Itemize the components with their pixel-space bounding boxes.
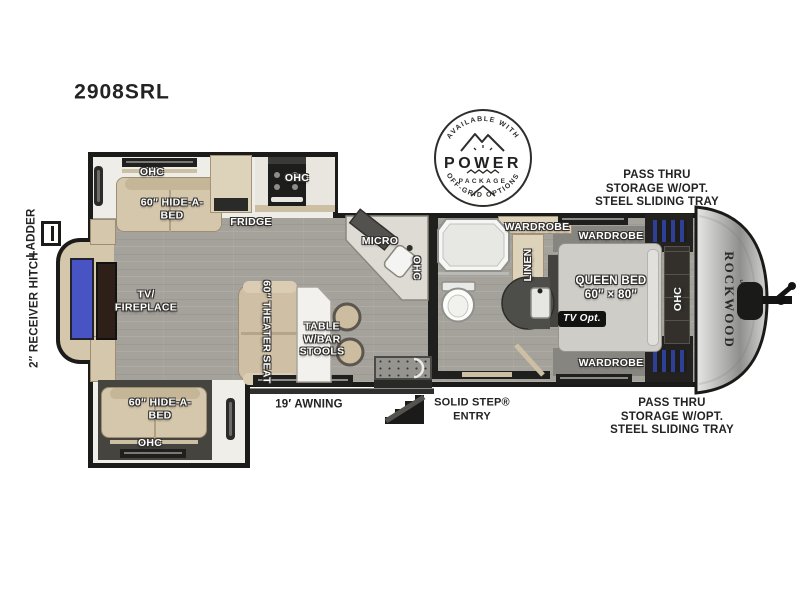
floorplan-canvas: 2908SRL AVAILABLE WITH OFF-GRID OPTIONS … <box>0 0 800 600</box>
label-wardrobe-front-top: WARDROBE <box>579 230 644 243</box>
label-tv-fireplace: TV/ FIREPLACE <box>115 289 177 314</box>
awning-bar <box>224 388 434 394</box>
bed-pillows <box>647 249 659 346</box>
badge-package-text: PACKAGE <box>459 178 508 185</box>
kitchen-shelf-strip <box>255 205 335 212</box>
fireplace <box>96 262 117 340</box>
tv-screen <box>70 258 94 340</box>
rear-corner-cabinet-bottom <box>90 336 116 382</box>
label-hide-a-bed-bottom: 60″ HIDE-A- BED <box>129 397 192 422</box>
jack-handle <box>778 287 791 298</box>
solid-step-rail <box>386 397 424 421</box>
power-package-badge: AVAILABLE WITH OFF-GRID OPTIONS POWER PA… <box>431 106 535 210</box>
label-pass-thru-bottom: PASS THRU STORAGE W/OPT. STEEL SLIDING T… <box>610 397 734 438</box>
badge-word: POWER <box>444 155 522 172</box>
rockwood-logo: ROCKWOOD <box>722 251 737 349</box>
front-cap <box>696 207 767 393</box>
badge-sun-rays-icon <box>474 145 492 150</box>
label-ohc-counter: OHC <box>410 256 423 280</box>
label-pass-thru-top: PASS THRU STORAGE W/OPT. STEEL SLIDING T… <box>595 169 719 210</box>
label-micro: MICRO <box>362 235 399 248</box>
label-ohc-slide-bottom: OHC <box>138 437 162 450</box>
slideout-top-window <box>94 166 103 206</box>
front-cap-accent <box>699 216 755 384</box>
label-awning: 19′ AWNING <box>275 398 343 412</box>
label-ohc-range: OHC <box>285 172 309 185</box>
entry-landing <box>374 356 432 380</box>
label-solid-step: SOLID STEP® ENTRY <box>434 397 510 424</box>
solid-step-icon <box>385 395 424 424</box>
bedroom-window-bottom <box>556 374 632 384</box>
badge-mountains-icon <box>461 134 504 151</box>
svg-text:AVAILABLE WITH: AVAILABLE WITH <box>446 116 520 140</box>
fridge-cabinet <box>210 155 252 213</box>
label-hide-a-bed-top: 60″ HIDE-A- BED <box>141 197 204 222</box>
tv-opt-label: TV Opt. <box>563 313 601 326</box>
label-fridge: FRIDGE <box>230 216 271 229</box>
range <box>268 164 306 206</box>
badge-arc-top-text: AVAILABLE WITH <box>446 116 520 140</box>
label-theater-seat: 60″ THEATER SEAT <box>260 280 273 383</box>
rear-corner-cabinet-top <box>90 219 116 245</box>
rockwood-logo-sub: ULTRA LITE <box>739 280 744 321</box>
label-wardrobe-front-bottom: WARDROBE <box>579 357 644 370</box>
bathroom-door-threshold <box>462 372 512 377</box>
model-title: 2908SRL <box>74 85 170 99</box>
entry-threshold <box>374 380 432 388</box>
label-receiver-hitch: 2″ RECEIVER HITCH <box>28 252 42 368</box>
label-ohc-bedroom: OHC <box>672 287 685 311</box>
tongue-jack <box>776 295 786 305</box>
label-table-stools: TABLE W/BAR STOOLS <box>300 320 345 358</box>
hitch-tongue <box>762 296 792 304</box>
fridge-front <box>214 198 248 211</box>
label-linen: LINEN <box>522 249 535 282</box>
ohc-cabinet-slide-bottom <box>120 449 186 458</box>
label-ohc-slide-top: OHC <box>140 166 164 179</box>
propane-cover <box>737 282 763 320</box>
bathroom-wall-left <box>428 216 438 376</box>
slideout-bottom-window <box>226 398 235 440</box>
label-queen-bed: QUEEN BED 60″ × 80″ <box>575 274 646 302</box>
range-hood <box>268 157 306 164</box>
ladder-icon <box>41 221 61 246</box>
label-ladder: LADDER <box>25 208 39 257</box>
label-wardrobe-bath: WARDROBE <box>505 221 570 234</box>
jack-handle-knob <box>788 282 796 290</box>
